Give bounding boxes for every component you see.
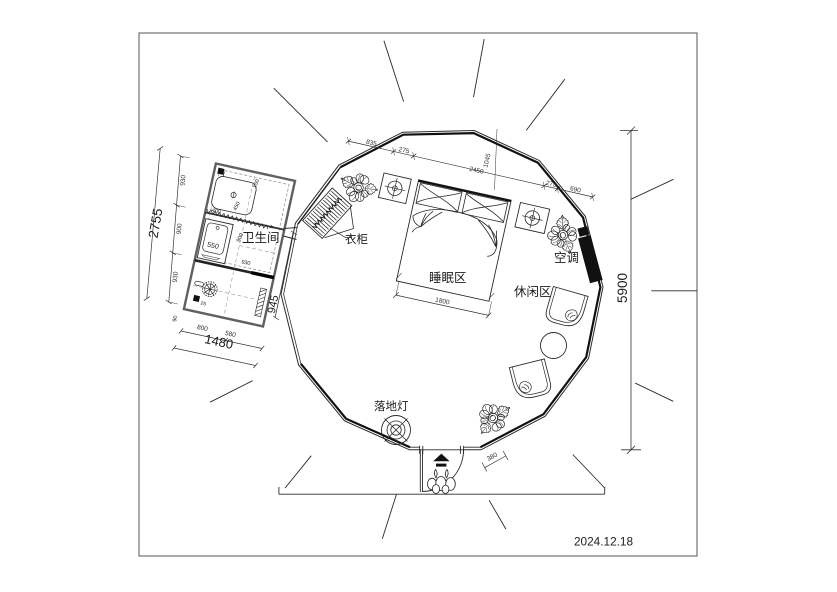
svg-text:2755: 2755 bbox=[146, 207, 166, 239]
svg-text:空调: 空调 bbox=[554, 251, 579, 265]
svg-text:690: 690 bbox=[569, 185, 582, 194]
svg-text:休闲区: 休闲区 bbox=[514, 285, 552, 299]
svg-text:卫生间: 卫生间 bbox=[242, 231, 280, 245]
svg-text:5900: 5900 bbox=[615, 273, 630, 303]
svg-text:900: 900 bbox=[176, 223, 184, 235]
svg-text:90: 90 bbox=[172, 315, 179, 322]
svg-text:落地灯: 落地灯 bbox=[374, 400, 409, 413]
svg-text:835: 835 bbox=[365, 139, 378, 148]
svg-text:930: 930 bbox=[180, 174, 188, 186]
svg-text:2024.12.18: 2024.12.18 bbox=[574, 535, 633, 549]
svg-text:睡眠区: 睡眠区 bbox=[429, 271, 467, 285]
svg-text:945: 945 bbox=[266, 294, 282, 314]
svg-text:衣柜: 衣柜 bbox=[345, 232, 368, 246]
svg-text:930: 930 bbox=[172, 271, 180, 283]
